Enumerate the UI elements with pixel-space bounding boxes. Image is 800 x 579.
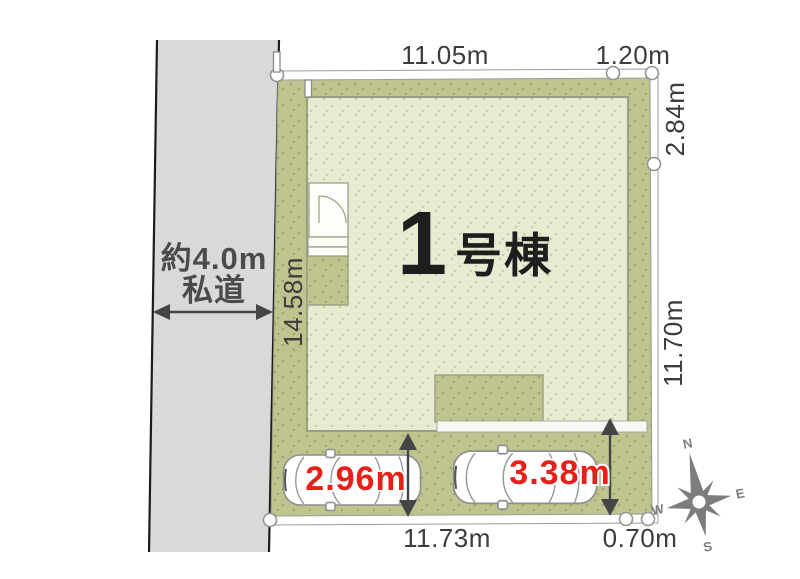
building-number: 1 — [397, 194, 447, 294]
top-boundary-line — [277, 69, 653, 80]
building-south-notch — [435, 375, 543, 422]
road-type-label: 私道 — [182, 273, 246, 308]
dim-right-lower: 11.70m — [658, 299, 688, 387]
entrance-step-1 — [308, 237, 348, 247]
dim-top: 11.05m — [401, 40, 489, 70]
compass-north-label: N — [682, 435, 694, 452]
dim-right-upper: 2.84m — [660, 82, 690, 157]
compass-west-label: W — [650, 501, 666, 518]
site-plan: 11.05m 1.20m 2.84m 11.70m 14.58m 11.73m … — [0, 0, 800, 579]
road-width-label: 約4.0m — [161, 241, 268, 276]
site-plan-svg: 11.05m 1.20m 2.84m 11.70m 14.58m 11.73m … — [0, 0, 800, 579]
building-number-suffix: 号棟 — [455, 229, 553, 282]
compass-south-label: S — [702, 538, 714, 554]
compass-east-label: E — [734, 485, 746, 501]
building-west-notch — [307, 255, 348, 305]
dim-bottom-right: 0.70m — [603, 523, 678, 553]
parking-1-label: 2.96m — [305, 460, 406, 498]
parking-2-label: 3.38m — [509, 454, 610, 492]
entrance-porch — [308, 183, 348, 256]
survey-pin-left — [305, 80, 312, 97]
boundary-point-right — [648, 158, 661, 171]
entrance-step-2 — [308, 247, 348, 256]
dim-bottom: 11.73m — [403, 523, 491, 553]
survey-pin-top — [274, 52, 281, 72]
dim-top-right: 1.20m — [596, 40, 671, 70]
boundary-point-bottom-left — [264, 514, 277, 527]
dim-left: 14.58m — [278, 257, 308, 347]
